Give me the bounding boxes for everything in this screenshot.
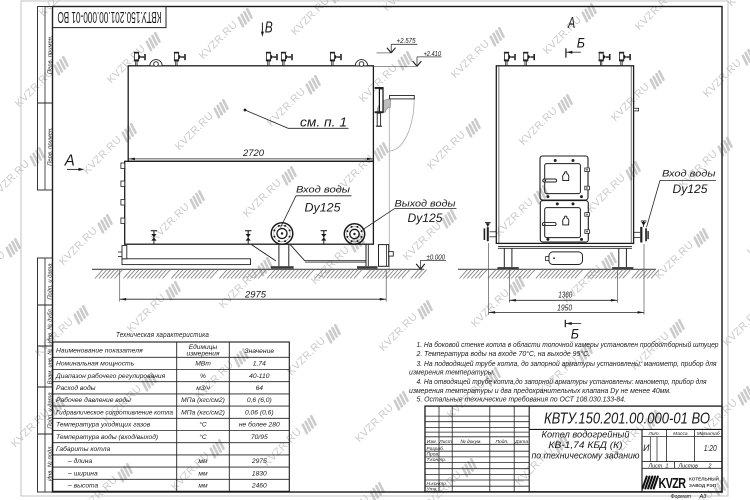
svg-text:ЗАВОД РЭП: ЗАВОД РЭП [689,483,716,488]
svg-text:Техническая характеристика: Техническая характеристика [116,332,209,339]
svg-text:КВТУ.150.201.00.000-01 ВО: КВТУ.150.201.00.000-01 ВО [544,411,710,428]
svg-text:КВ-1,74 КБД (К): КВ-1,74 КБД (К) [549,440,623,450]
svg-text:Разраб.: Разраб. [427,446,445,452]
svg-text:Дата: Дата [514,439,528,445]
svg-text:%: % [200,373,206,380]
svg-text:МВт: МВт [195,361,211,368]
svg-text:3. На подводящей трубе котла,: 3. На подводящей трубе котла, до запорно… [417,360,717,368]
svg-text:Вход воды: Вход воды [296,185,350,196]
svg-text:МПа (кгс/см2): МПа (кгс/см2) [181,397,225,404]
svg-text:Выход воды: Выход воды [395,198,456,209]
svg-text:Расход воды: Расход воды [56,384,96,392]
svg-text:Масса: Масса [673,431,688,437]
svg-text:не более 280: не более 280 [239,421,280,429]
svg-text:Перв. примен.: Перв. примен. [47,127,53,166]
svg-text:Инв. № дубл.: Инв. № дубл. [47,308,53,344]
svg-text:1360: 1360 [558,290,572,299]
svg-text:И: И [643,443,650,453]
svg-text:см. п. 1: см. п. 1 [300,115,347,129]
svg-text:по техническому заданию: по техническому заданию [532,451,640,461]
svg-text:Формат: Формат [671,494,692,500]
svg-text:1: 1 [666,463,669,469]
svg-text:Температура воды (вход/выход): Температура воды (вход/выход) [56,433,158,441]
svg-text:Диапазон рабочего регулировани: Диапазон рабочего регулирования [55,372,166,380]
svg-text:°С: °С [199,421,207,429]
svg-text:Пров.: Пров. [427,452,440,458]
svg-text:±0.000: ±0.000 [427,253,446,261]
svg-text:Значение: Значение [244,348,274,355]
svg-text:измерения температуры.: измерения температуры. [409,370,495,377]
svg-text:Н.контр.: Н.контр. [427,481,448,487]
svg-text:Вход воды: Вход воды [662,168,716,179]
svg-text:Наименование показателя: Наименование показателя [56,347,143,354]
svg-text:Подп. и дата: Подп. и дата [47,263,53,300]
svg-text:Гидравлическое сопротивление к: Гидравлическое сопротивление котла [56,408,173,416]
svg-text:KVZR: KVZR [659,476,687,492]
svg-text:2. Температура воды на входе: 2. Температура воды на входе 70°С, на вы… [416,350,591,358]
svg-text:№ докум.: № докум. [460,439,482,445]
svg-text:2720: 2720 [242,148,265,159]
svg-text:2: 2 [708,463,712,469]
svg-text:40-110: 40-110 [249,373,270,380]
svg-text:+2.575: +2.575 [397,36,417,45]
svg-text:Подп.: Подп. [495,439,508,445]
svg-text:Утв.: Утв. [427,487,438,493]
svg-text:мм: мм [198,470,208,477]
svg-text:Лист: Лист [648,463,663,469]
svg-text:А: А [567,15,575,32]
svg-text:Dy125: Dy125 [305,203,342,215]
svg-text:2460: 2460 [251,483,267,490]
svg-text:Котел водогрейный: Котел водогрейный [542,429,630,439]
svg-text:°С: °С [199,433,207,441]
svg-text:Температура уходящих газов: Температура уходящих газов [56,421,151,429]
svg-text:– высота: – высота [67,483,99,490]
svg-text:Лит.: Лит. [647,431,659,437]
svg-text:Dy125: Dy125 [408,213,444,225]
svg-text:измерения: измерения [187,351,220,358]
svg-text:Рабочее давление воды: Рабочее давление воды [56,396,131,404]
svg-text:64: 64 [256,385,264,392]
svg-text:Dy125: Dy125 [673,184,709,196]
svg-text:Едимицы: Едимицы [189,343,218,351]
svg-text:мм: мм [198,458,208,465]
svg-text:70/95: 70/95 [251,434,268,441]
svg-text:Номинальная мощность: Номинальная мощность [56,361,135,368]
svg-text:Т.контр.: Т.контр. [427,457,447,463]
svg-text:1950: 1950 [557,304,572,313]
svg-text:2975: 2975 [251,458,267,465]
svg-text:Листов: Листов [678,463,699,469]
svg-text:КВТУ.150.201.00.000-01 ВО: КВТУ.150.201.00.000-01 ВО [58,8,162,25]
svg-text:измерения температуры и два пр: измерения температуры и два предохраните… [409,387,671,395]
svg-text:Габариты котла: Габариты котла [56,445,110,453]
svg-text:5. Остальные технические треб: 5. Остальные технические требования по О… [417,395,627,403]
svg-text:А3: А3 [699,494,708,500]
svg-text:Перв. примен.: Перв. примен. [47,36,53,75]
svg-text:0,6 (6,0): 0,6 (6,0) [247,397,272,404]
svg-text:+2.410: +2.410 [424,50,442,58]
svg-text:Б: Б [577,35,585,51]
svg-text:КОТЕЛЬНЫЙ: КОТЕЛЬНЫЙ [689,475,719,482]
svg-text:Масштаб: Масштаб [697,431,720,437]
svg-text:Б: Б [571,326,579,342]
svg-text:В: В [265,19,273,36]
svg-text:– длина: – длина [67,457,92,465]
svg-text:4. На отводящей трубе котла,д: 4. На отводящей трубе котла,до запорной … [417,378,707,386]
svg-text:Лист: Лист [438,439,452,445]
svg-text:– ширина: – ширина [67,470,98,477]
svg-text:2975: 2975 [244,290,267,301]
svg-text:м3/ч: м3/ч [196,385,210,392]
svg-text:Изм.: Изм. [427,439,437,445]
svg-text:1830: 1830 [252,470,267,477]
svg-text:мм: мм [198,483,208,490]
svg-text:МПа (кгс/см2): МПа (кгс/см2) [181,409,225,416]
svg-text:1:20: 1:20 [704,444,717,453]
svg-text:А: А [64,153,75,170]
svg-text:1. На боковой стенке котла в: 1. На боковой стенке котла в области топ… [417,341,719,349]
svg-text:0,06 (0,6): 0,06 (0,6) [245,409,274,416]
svg-text:1,74: 1,74 [253,361,266,368]
